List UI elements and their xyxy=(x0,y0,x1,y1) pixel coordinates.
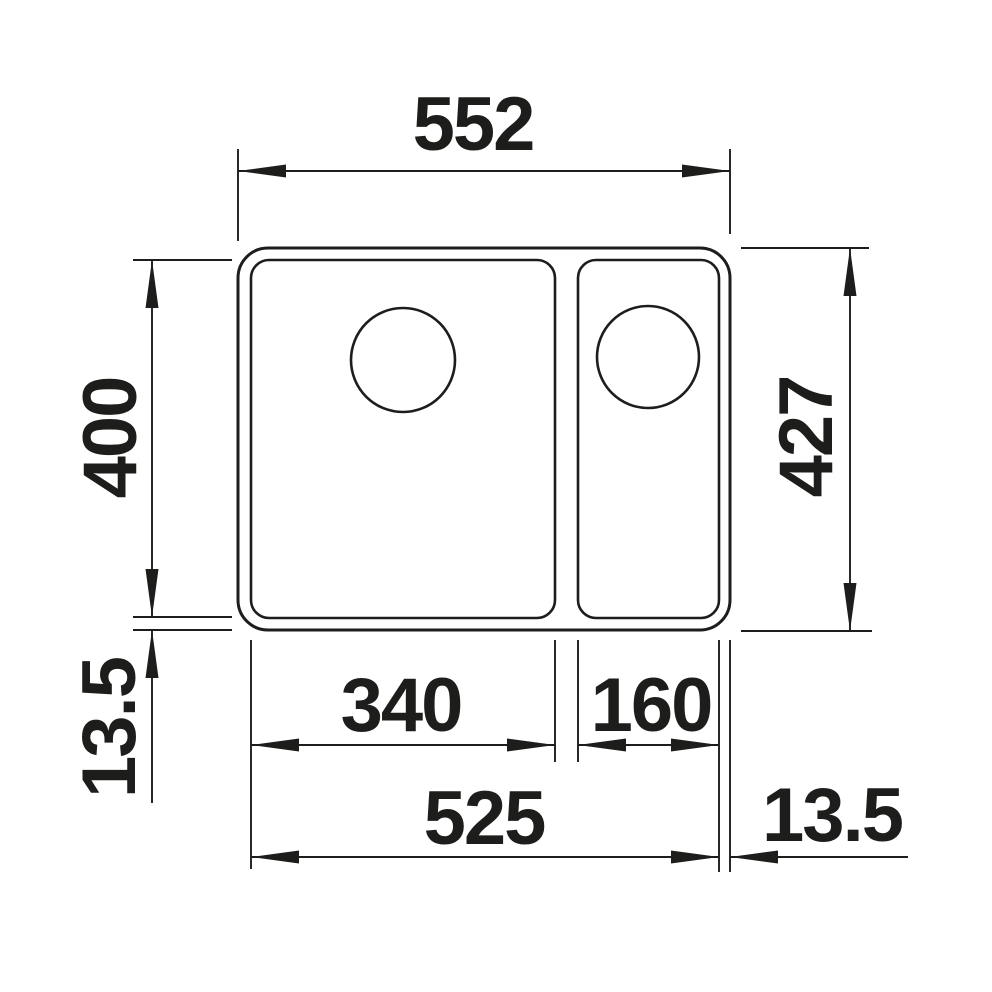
dimension-lines xyxy=(152,171,908,857)
arrow-overall-depth-up-icon xyxy=(844,248,857,296)
dim-overall-depth-label: 427 xyxy=(769,377,845,498)
arrow-bowl-depth-down-icon xyxy=(146,569,159,617)
main-bowl xyxy=(251,260,555,618)
sink-outer-edge xyxy=(238,248,730,630)
half-bowl-drain-hole-icon xyxy=(597,306,699,408)
sink-dimension-drawing: 552 400 13.5 427 340 160 525 13.5 xyxy=(0,0,992,992)
main-bowl-drain-hole-icon xyxy=(351,308,455,412)
dim-rim-left-label: 13.5 xyxy=(72,658,148,798)
sink-outline xyxy=(238,248,730,630)
dim-half-bowl-width-label: 160 xyxy=(591,668,712,744)
arrow-inner-width-right-icon xyxy=(671,851,719,864)
arrow-main-bowl-right-icon xyxy=(507,739,555,752)
dim-bowl-depth-label: 400 xyxy=(73,378,149,499)
dim-inner-width-label: 525 xyxy=(424,781,545,857)
half-bowl xyxy=(578,260,719,618)
dim-overall-width-label: 552 xyxy=(413,87,534,163)
arrow-bowl-depth-up-icon xyxy=(146,260,159,308)
arrow-overall-width-right-icon xyxy=(682,165,730,178)
arrow-overall-depth-down-icon xyxy=(844,583,857,631)
arrow-overall-width-left-icon xyxy=(238,165,286,178)
dim-rim-right-label: 13.5 xyxy=(762,778,902,854)
extension-lines xyxy=(133,149,872,872)
arrow-inner-width-left-icon xyxy=(251,851,299,864)
dim-main-bowl-width-label: 340 xyxy=(341,668,462,744)
arrow-main-bowl-left-icon xyxy=(251,739,299,752)
